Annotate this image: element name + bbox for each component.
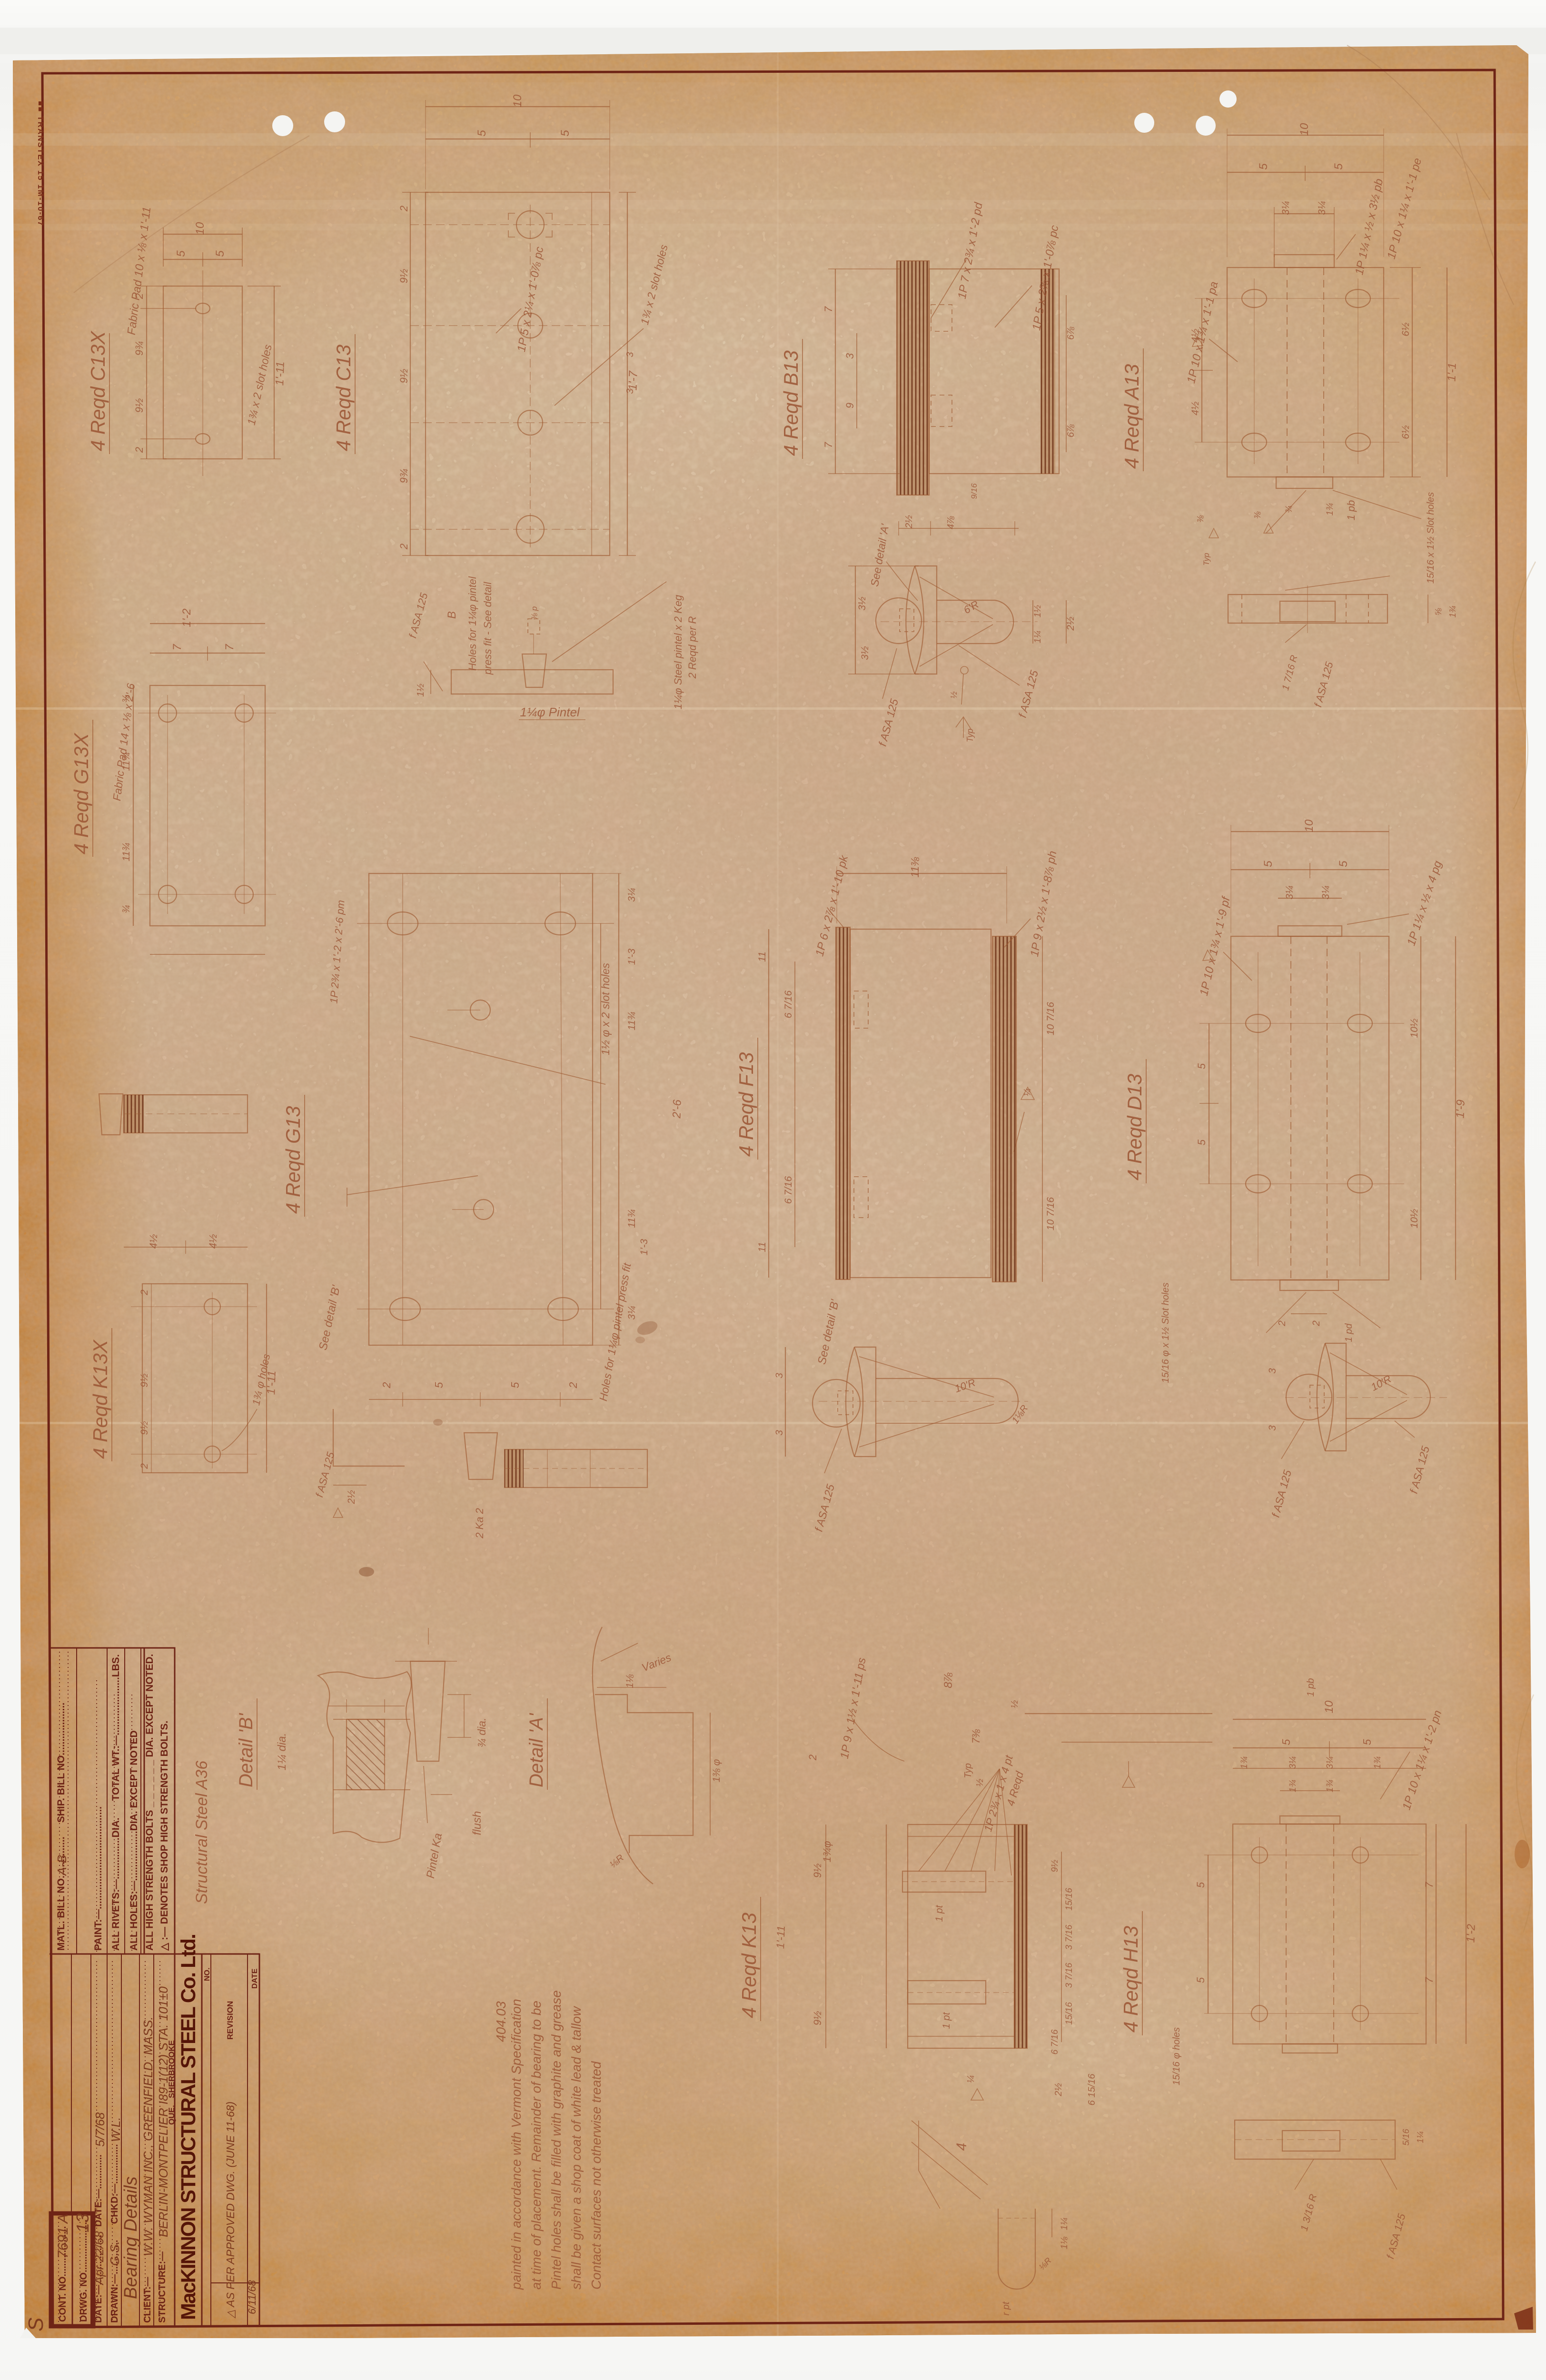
svg-text:DRWG. NO....................: DRWG. NO.................... <box>79 2220 89 2322</box>
svg-text:3¼: 3¼ <box>1280 201 1291 215</box>
svg-text:1¾: 1¾ <box>1239 1756 1249 1769</box>
svg-text:10: 10 <box>1303 819 1316 832</box>
svg-text:11⅜: 11⅜ <box>909 857 921 878</box>
svg-text:△ AS PER APPROVED DWG. (JUNE 1: △ AS PER APPROVED DWG. (JUNE 11-68) <box>224 2102 237 2319</box>
svg-text:3 7/16: 3 7/16 <box>1064 1924 1074 1950</box>
svg-text:3: 3 <box>625 352 635 357</box>
svg-text:1½: 1½ <box>416 684 426 697</box>
svg-text:8⅞: 8⅞ <box>942 1672 955 1688</box>
svg-text:ALL RIVETS:—...............DIA: ALL RIVETS:—...............DIA. TOTAL WT… <box>110 1654 121 1951</box>
svg-text:ALL HOLES:—..................D: ALL HOLES:—..................DIA. EXCEPT… <box>129 1730 139 1951</box>
svg-text:4½: 4½ <box>148 1234 159 1249</box>
svg-text:3: 3 <box>625 388 635 394</box>
svg-text:¾: ¾ <box>121 905 132 913</box>
svg-text:DRAWN:—............. CHKD: DRAWN:—............. CHKD:—.............… <box>109 2144 120 2323</box>
svg-text:11¾: 11¾ <box>626 1209 637 1228</box>
svg-text:5: 5 <box>1196 1063 1208 1069</box>
svg-text:4 Reqd K13: 4 Reqd K13 <box>738 1913 760 2018</box>
svg-text:2: 2 <box>398 206 410 212</box>
svg-text:2: 2 <box>380 1382 393 1388</box>
svg-text:3½: 3½ <box>860 646 871 660</box>
svg-text:5: 5 <box>1262 861 1275 867</box>
svg-text:Detail 'B': Detail 'B' <box>236 1713 257 1787</box>
svg-text:¼: ¼ <box>1022 1089 1033 1097</box>
svg-text:2½: 2½ <box>1053 2083 1064 2097</box>
svg-text:5: 5 <box>1337 861 1350 867</box>
svg-text:2: 2 <box>398 544 410 550</box>
svg-text:G.S.: G.S. <box>108 2241 122 2266</box>
svg-text:5/7/68: 5/7/68 <box>93 2112 107 2147</box>
svg-text:5: 5 <box>214 250 227 257</box>
svg-text:4 Reqd F13: 4 Reqd F13 <box>735 1052 757 1157</box>
svg-text:5: 5 <box>509 1382 521 1388</box>
svg-text:1 pb: 1 pb <box>1345 500 1357 521</box>
svg-text:1 pt: 1 pt <box>934 1904 945 1922</box>
svg-text:3¼: 3¼ <box>1284 885 1295 899</box>
svg-text:9½: 9½ <box>812 1864 823 1878</box>
svg-text:1¾φ: 1¾φ <box>821 1841 833 1863</box>
svg-text:5: 5 <box>1195 1977 1207 1983</box>
svg-text:½: ½ <box>1010 1700 1020 1708</box>
svg-text:5: 5 <box>1361 1739 1373 1745</box>
svg-text:BERLIN-MONTPELIER I89-1(12) ST: BERLIN-MONTPELIER I89-1(12) STA. 101±0 <box>156 1986 170 2237</box>
svg-text:⅜ p: ⅜ p <box>530 606 539 620</box>
svg-text:5: 5 <box>433 1382 445 1388</box>
svg-text:9½: 9½ <box>139 1421 150 1435</box>
svg-text:404.03: 404.03 <box>494 2001 508 2042</box>
svg-text:1¼φ Pintel: 1¼φ Pintel <box>520 705 580 719</box>
svg-text:1½: 1½ <box>1033 605 1043 618</box>
svg-text:6 7/16: 6 7/16 <box>783 1176 794 1204</box>
svg-text:MATL. BILL NO...............: MATL. BILL NO............... SHIP. BILL … <box>56 1703 67 1951</box>
svg-text:5: 5 <box>175 250 188 257</box>
svg-text:1⅛: 1⅛ <box>624 1674 635 1688</box>
svg-text:10: 10 <box>1298 123 1311 136</box>
svg-text:½: ½ <box>949 691 959 698</box>
svg-text:4 Reqd A13: 4 Reqd A13 <box>1120 364 1143 469</box>
svg-text:11: 11 <box>757 1242 768 1252</box>
svg-text:1'-3: 1'-3 <box>639 1239 650 1256</box>
svg-text:1'-2: 1'-2 <box>1464 1924 1477 1943</box>
svg-text:2: 2 <box>139 1463 150 1469</box>
svg-text:1'-2: 1'-2 <box>180 608 193 627</box>
svg-text:13: 13 <box>73 2213 92 2232</box>
svg-text:Typ: Typ <box>1202 553 1211 565</box>
svg-text:3¼: 3¼ <box>1320 885 1331 899</box>
svg-text:2½: 2½ <box>904 515 914 529</box>
svg-text:4 Reqd C13: 4 Reqd C13 <box>332 345 355 451</box>
svg-text:5: 5 <box>1196 1139 1208 1145</box>
svg-text:W.W. WYMAN INC., GREENFIELD, M: W.W. WYMAN INC., GREENFIELD, MASS. <box>141 2016 155 2256</box>
svg-text:7: 7 <box>1423 1977 1435 1983</box>
svg-text:10 7/16: 10 7/16 <box>1045 1002 1056 1035</box>
svg-text:2½: 2½ <box>346 1490 357 1504</box>
svg-text:10: 10 <box>1323 1700 1336 1713</box>
svg-text:15/16 φ x 1½ Slot holes: 15/16 φ x 1½ Slot holes <box>1160 1283 1171 1383</box>
svg-text:1¼φ Steel pintel x 2 Keg: 1¼φ Steel pintel x 2 Keg <box>672 595 684 709</box>
svg-text:2: 2 <box>807 1755 819 1761</box>
svg-text:press fit - See detail: press fit - See detail <box>482 582 494 675</box>
svg-text:4 Reqd D13: 4 Reqd D13 <box>1123 1074 1146 1180</box>
svg-text:1¼: 1¼ <box>1060 2218 1070 2231</box>
svg-text:⅜: ⅜ <box>1253 511 1262 518</box>
svg-text:3¼: 3¼ <box>1325 1756 1335 1769</box>
svg-text:1'-7: 1'-7 <box>626 370 640 391</box>
svg-text:9½: 9½ <box>1050 1860 1060 1873</box>
svg-text:NO.: NO. <box>203 1968 211 1981</box>
svg-text:4½: 4½ <box>207 1234 219 1249</box>
svg-text:Bearing Details: Bearing Details <box>121 2176 141 2299</box>
svg-text:⅝: ⅝ <box>1434 608 1443 615</box>
svg-text:10½: 10½ <box>1409 1209 1420 1229</box>
svg-text:at time of placement. Remainde: at time of placement. Remainder of beari… <box>529 2001 544 2290</box>
svg-text:flush: flush <box>471 1811 484 1835</box>
svg-text:2: 2 <box>1311 1320 1322 1327</box>
svg-text:4 Reqd G13: 4 Reqd G13 <box>282 1106 304 1214</box>
svg-text:4 Reqd H13: 4 Reqd H13 <box>1120 1926 1142 2033</box>
svg-text:6⅞: 6⅞ <box>1066 424 1076 437</box>
svg-text:1'-1: 1'-1 <box>1445 363 1458 382</box>
svg-text:⅜: ⅜ <box>1196 515 1205 522</box>
svg-text:3¼: 3¼ <box>1317 201 1328 215</box>
svg-text:6½: 6½ <box>1400 425 1411 439</box>
svg-text:11¾: 11¾ <box>626 1011 637 1030</box>
svg-text:15/16: 15/16 <box>1064 1888 1074 1911</box>
svg-text:W.L.: W.L. <box>109 2117 123 2142</box>
svg-text:6 7/16: 6 7/16 <box>783 990 794 1018</box>
svg-text:7: 7 <box>823 306 834 312</box>
svg-text:11: 11 <box>757 952 768 962</box>
svg-text:9½: 9½ <box>133 398 145 413</box>
svg-text:7691 A: 7691 A <box>55 2214 71 2259</box>
svg-text:1⅛: 1⅛ <box>1060 2237 1070 2250</box>
svg-text:4 Reqd B13: 4 Reqd B13 <box>780 350 802 456</box>
svg-text:4 Reqd K13X: 4 Reqd K13X <box>89 1339 111 1459</box>
svg-text:B: B <box>446 611 458 619</box>
svg-text:7: 7 <box>823 442 834 448</box>
svg-text:Structural Steel A36: Structural Steel A36 <box>193 1761 211 1904</box>
svg-text:7: 7 <box>171 644 184 651</box>
svg-text:3: 3 <box>774 1430 785 1436</box>
svg-text:7: 7 <box>1423 1882 1435 1888</box>
svg-text:PAINT:—.......................: PAINT:—.................................… <box>93 1806 104 1951</box>
svg-text:10½: 10½ <box>1409 1019 1420 1038</box>
svg-text:Holes for 1¼φ pintel: Holes for 1¼φ pintel <box>466 576 478 671</box>
svg-text:1¾: 1¾ <box>1325 503 1335 516</box>
svg-text:△ :— DENOTES SHOP HIGH STRENGT: △ :— DENOTES SHOP HIGH STRENGTH BOLTS. <box>159 1721 170 1951</box>
svg-text:DATE: DATE <box>251 1968 259 1989</box>
svg-text:5: 5 <box>1257 163 1270 170</box>
svg-text:¾: ¾ <box>1284 506 1294 513</box>
svg-text:STRUCTURE:—: STRUCTURE:— <box>157 2251 168 2323</box>
svg-text:Apr 22/68: Apr 22/68 <box>92 2231 106 2286</box>
svg-text:10: 10 <box>511 94 524 107</box>
svg-text:2: 2 <box>139 1289 150 1296</box>
svg-text:½: ½ <box>975 1778 985 1786</box>
svg-text:1¾: 1¾ <box>1325 1780 1335 1793</box>
svg-text:10: 10 <box>194 222 207 235</box>
svg-text:1¼: 1¼ <box>1416 2131 1425 2143</box>
svg-text:1¼ dia.: 1¼ dia. <box>276 1733 288 1771</box>
svg-text:r pt: r pt <box>1001 2301 1011 2315</box>
svg-text:9½: 9½ <box>139 1373 150 1387</box>
svg-text:1'-3: 1'-3 <box>626 949 637 965</box>
svg-text:9/16: 9/16 <box>970 483 979 499</box>
svg-text:9½: 9½ <box>812 2011 823 2026</box>
svg-text:Contact surfaces not otherwise: Contact surfaces not otherwise treated <box>589 2061 604 2290</box>
svg-text:4½: 4½ <box>1190 401 1201 415</box>
svg-text:3: 3 <box>1267 1425 1278 1431</box>
svg-text:4 Reqd G13X: 4 Reqd G13X <box>70 733 92 854</box>
svg-text:Pintel holes shall be filled w: Pintel holes shall be filled with graphi… <box>549 1990 564 2290</box>
svg-text:Typ: Typ <box>965 729 975 743</box>
svg-text:6 7/16: 6 7/16 <box>1050 2029 1060 2054</box>
svg-text:Detail 'A': Detail 'A' <box>526 1713 547 1787</box>
svg-text:6½: 6½ <box>1400 322 1411 336</box>
svg-text:■■ TRANSTEX 15 1M-10-67: ■■ TRANSTEX 15 1M-10-67 <box>36 101 45 227</box>
svg-text:1'-11: 1'-11 <box>774 1925 787 1949</box>
svg-text:15/16: 15/16 <box>1064 2002 1074 2025</box>
svg-text:10 7/16: 10 7/16 <box>1045 1197 1056 1230</box>
svg-text:CLIENT:—: CLIENT:— <box>142 2277 153 2323</box>
svg-text:7⅜: 7⅜ <box>970 1729 982 1744</box>
svg-text:3½: 3½ <box>857 596 868 610</box>
svg-text:3 7/16: 3 7/16 <box>1064 1963 1074 1988</box>
svg-text:9: 9 <box>844 403 856 408</box>
svg-text:5: 5 <box>1280 1739 1292 1745</box>
svg-text:3: 3 <box>1267 1368 1278 1374</box>
svg-text:15/16 φ holes: 15/16 φ holes <box>1171 2027 1182 2085</box>
svg-text:5: 5 <box>1195 1882 1207 1888</box>
svg-text:1¾: 1¾ <box>1288 1780 1298 1793</box>
svg-text:2: 2 <box>567 1382 579 1388</box>
svg-text:3¼: 3¼ <box>1288 1756 1298 1769</box>
svg-text:5: 5 <box>476 130 488 137</box>
svg-text:3: 3 <box>844 353 856 359</box>
svg-text:4: 4 <box>954 2143 970 2151</box>
svg-text:9½: 9½ <box>398 369 410 384</box>
svg-text:2 Reqd per R: 2 Reqd per R <box>686 616 698 679</box>
svg-text:15/16 x 1½ Slot holes: 15/16 x 1½ Slot holes <box>1426 492 1436 584</box>
svg-text:5/16: 5/16 <box>1401 2129 1411 2146</box>
svg-text:REVISION: REVISION <box>226 2001 235 2040</box>
svg-text:5: 5 <box>1332 163 1345 170</box>
svg-text:9¾: 9¾ <box>398 469 410 484</box>
svg-text:ALL HIGH STRENGTH BOLTS _ _ _: ALL HIGH STRENGTH BOLTS _ _ _ _ _ _ DIA.… <box>144 1654 155 1951</box>
svg-text:2: 2 <box>1277 1320 1288 1327</box>
svg-text:11¾: 11¾ <box>121 843 132 861</box>
svg-text:MacKINNON STRUCTURAL STEEL Co.: MacKINNON STRUCTURAL STEEL Co. Ltd. <box>177 1934 200 2320</box>
svg-text:¼: ¼ <box>966 2075 976 2083</box>
svg-text:A-B: A-B <box>55 1855 69 1876</box>
svg-text:1⅜ φ: 1⅜ φ <box>711 1759 722 1782</box>
svg-text:6/11/68: 6/11/68 <box>246 2280 258 2314</box>
svg-text:5: 5 <box>559 130 572 137</box>
svg-text:Typ: Typ <box>963 1763 973 1778</box>
svg-text:1'-11: 1'-11 <box>273 361 287 386</box>
svg-text:4⅞: 4⅞ <box>946 516 956 529</box>
svg-text:shall be given a shop coat of: shall be given a shop coat of white lead… <box>569 2006 584 2290</box>
svg-text:4 Reqd C13X: 4 Reqd C13X <box>87 330 109 451</box>
svg-text:3¼: 3¼ <box>626 1306 637 1319</box>
svg-text:1 pd: 1 pd <box>1344 1323 1354 1342</box>
svg-text:7: 7 <box>223 644 236 651</box>
svg-text:9½: 9½ <box>398 269 410 284</box>
svg-text:2'-6: 2'-6 <box>670 1099 684 1119</box>
svg-text:6 15/16: 6 15/16 <box>1087 2073 1097 2106</box>
svg-text:1¼: 1¼ <box>1033 631 1043 644</box>
svg-text:1½ φ x 2 slot holes: 1½ φ x 2 slot holes <box>599 963 612 1055</box>
svg-text:1 pb: 1 pb <box>1306 1678 1316 1697</box>
svg-text:1 pt: 1 pt <box>941 2012 952 2029</box>
svg-text:2: 2 <box>133 447 145 453</box>
svg-text:2 Ka 2: 2 Ka 2 <box>474 1508 486 1539</box>
svg-text:1'-9: 1'-9 <box>1454 1100 1467 1119</box>
svg-text:6⅞: 6⅞ <box>1066 327 1076 340</box>
svg-text:¾ dia.: ¾ dia. <box>476 1718 488 1748</box>
svg-text:S: S <box>24 2318 48 2331</box>
svg-text:3¼: 3¼ <box>626 888 637 902</box>
svg-text:2½: 2½ <box>1065 616 1076 631</box>
svg-text:1¾: 1¾ <box>1373 1756 1383 1769</box>
svg-text:painted in accordance with Ver: painted in accordance with Vermont Speci… <box>509 1999 524 2290</box>
svg-text:3: 3 <box>774 1373 785 1378</box>
svg-text:9¾: 9¾ <box>133 341 145 356</box>
svg-text:1¾: 1¾ <box>1448 605 1457 617</box>
